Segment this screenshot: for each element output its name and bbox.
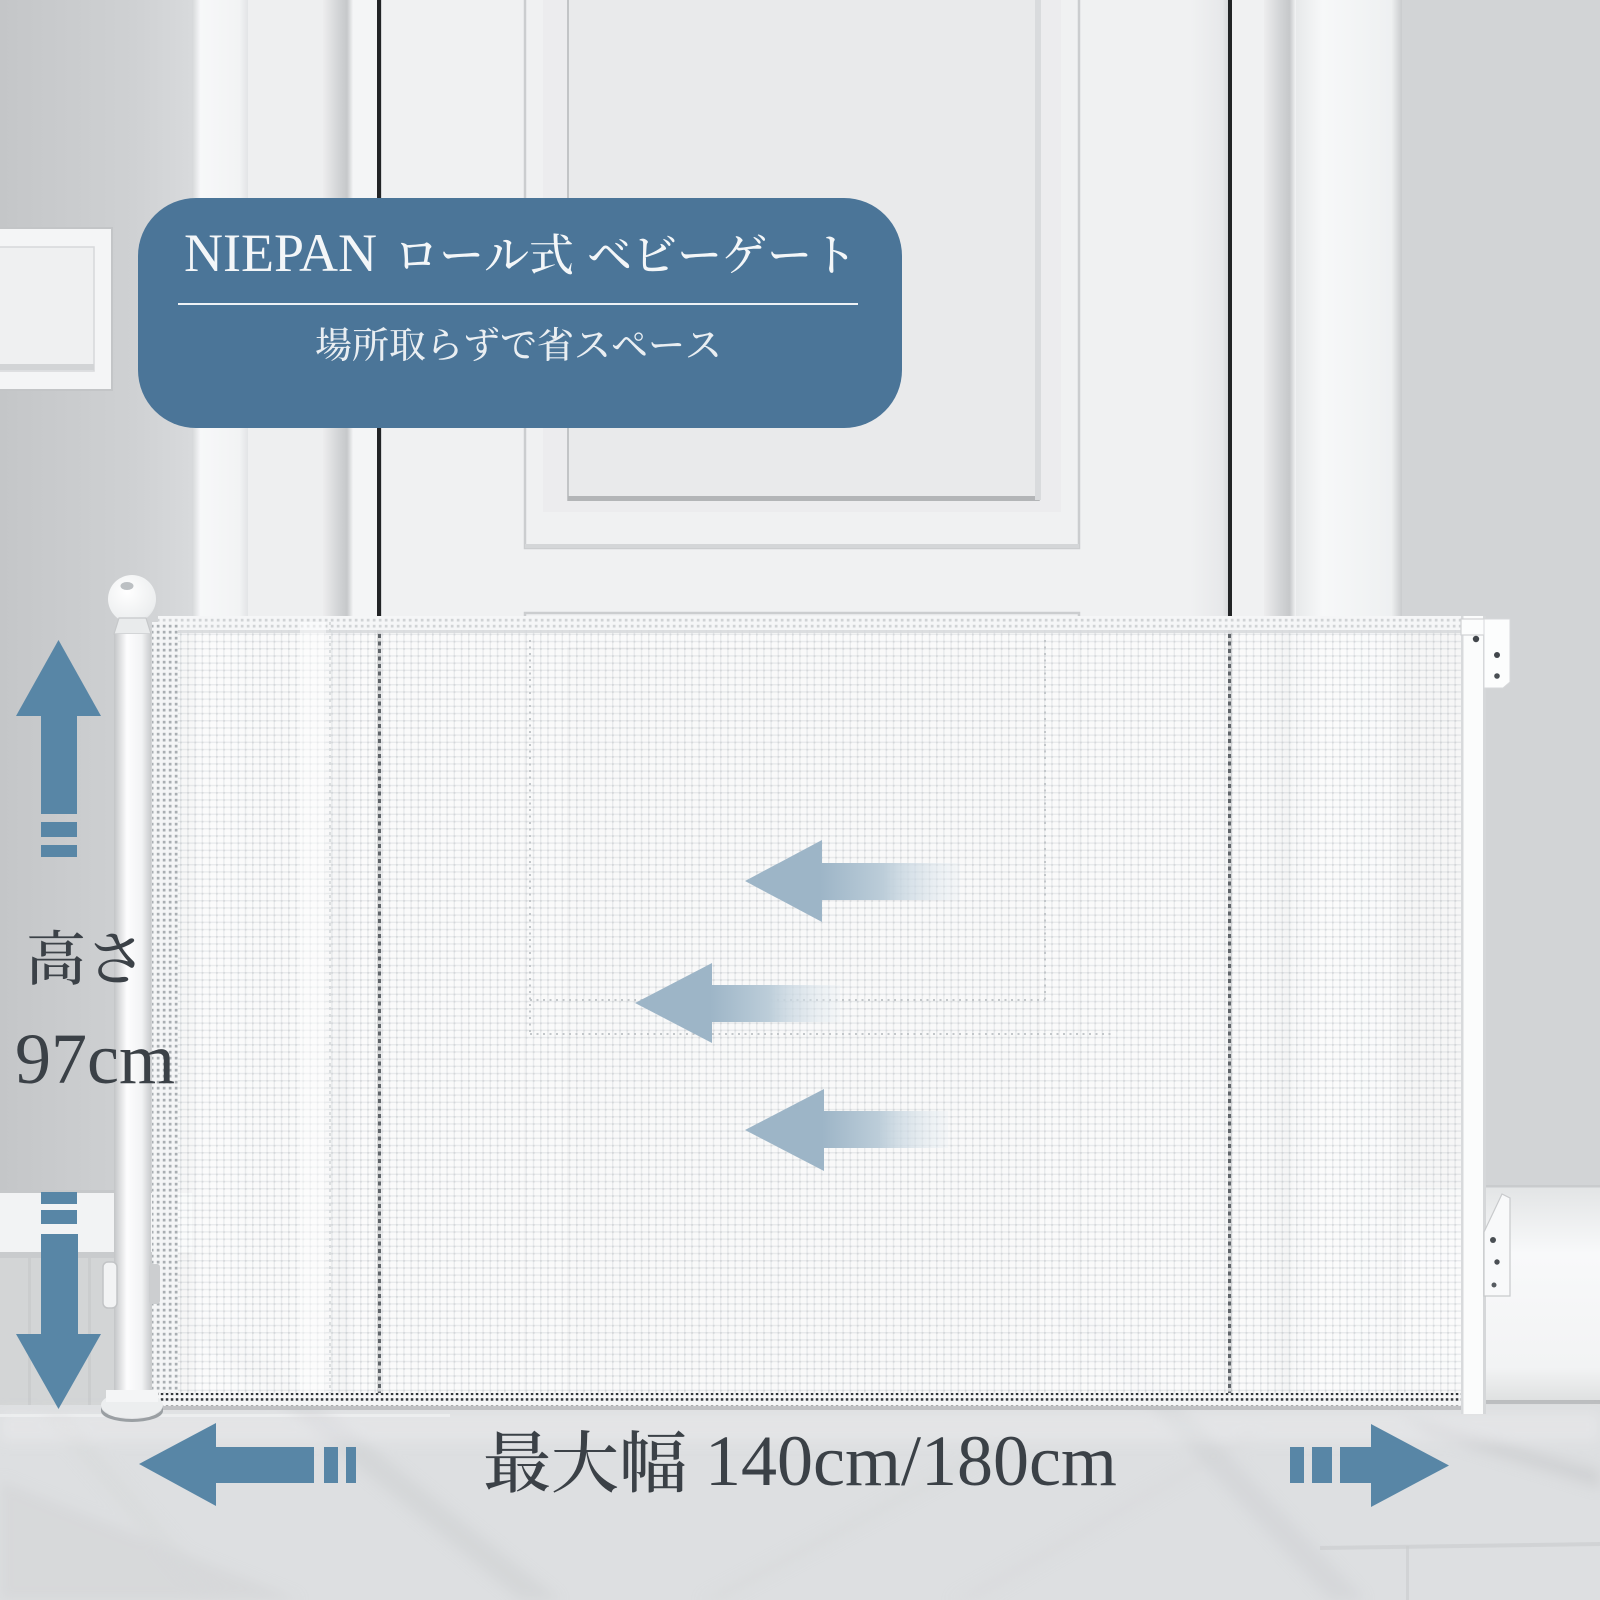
svg-text:97cm: 97cm <box>15 1019 175 1099</box>
svg-text:NIEPAN: NIEPAN <box>184 223 377 283</box>
svg-text:140cm/180cm: 140cm/180cm <box>705 1421 1117 1501</box>
